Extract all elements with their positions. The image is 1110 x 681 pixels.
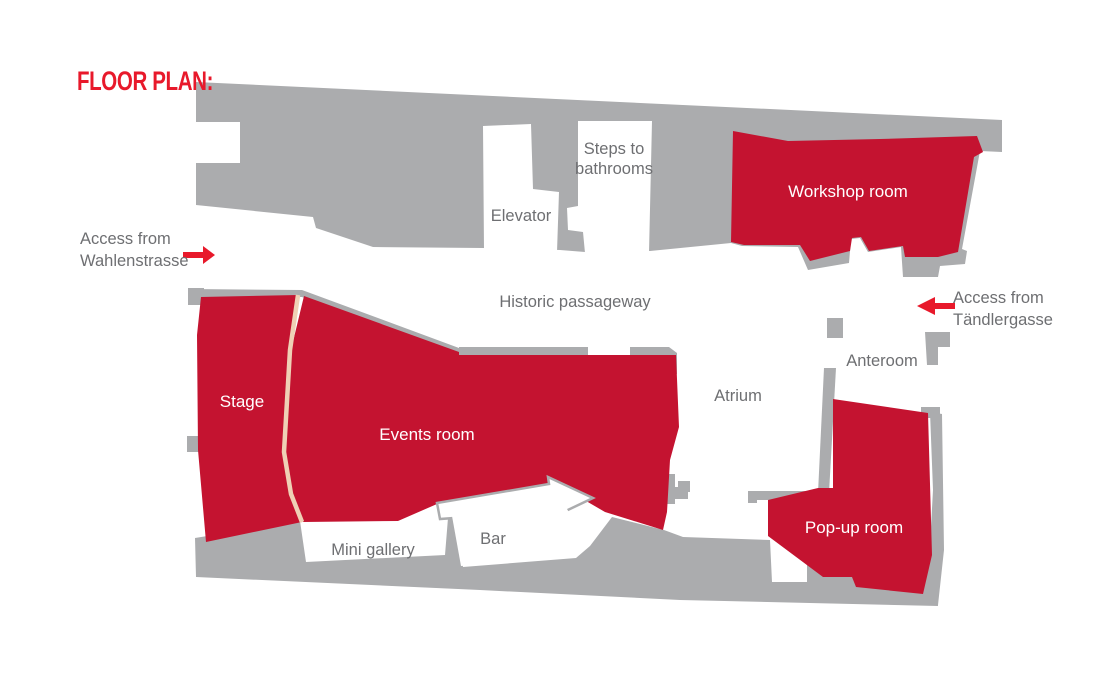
room-label-popup: Pop-up room [805, 518, 903, 538]
area-label-atrium: Atrium [714, 386, 762, 406]
wall-events-top-a [459, 347, 588, 355]
wall-atrium-tab [678, 481, 690, 492]
wall-anteroom-right [925, 332, 950, 365]
wall-anteroom-top [827, 318, 843, 338]
area-label-elevator: Elevator [491, 206, 552, 226]
area-label-mini-gallery: Mini gallery [331, 540, 414, 560]
wall-popup-left-stub [748, 491, 757, 503]
area-label-steps-to-bathrooms: Steps to bathrooms [575, 139, 653, 179]
access-label-taendlergasse: Access from Tändlergasse [953, 288, 1053, 331]
page-title: FLOOR PLAN: [77, 66, 213, 97]
area-label-anteroom: Anteroom [846, 351, 918, 371]
floor-plan-canvas: FLOOR PLAN: Access from Wahlenstrasse Ac… [0, 0, 1110, 681]
floor-plan-drawing [0, 0, 1110, 681]
area-label-bar: Bar [480, 529, 506, 549]
room-label-workshop: Workshop room [788, 182, 908, 202]
area-label-historic-passageway: Historic passageway [499, 292, 650, 312]
upper-left-niche [190, 122, 240, 163]
room-label-events: Events room [379, 425, 474, 445]
access-arrow-taendlergasse-icon [917, 297, 955, 315]
access-label-wahlenstrasse: Access from Wahlenstrasse [80, 229, 189, 272]
popup-room [768, 399, 932, 594]
room-label-stage: Stage [220, 392, 264, 412]
